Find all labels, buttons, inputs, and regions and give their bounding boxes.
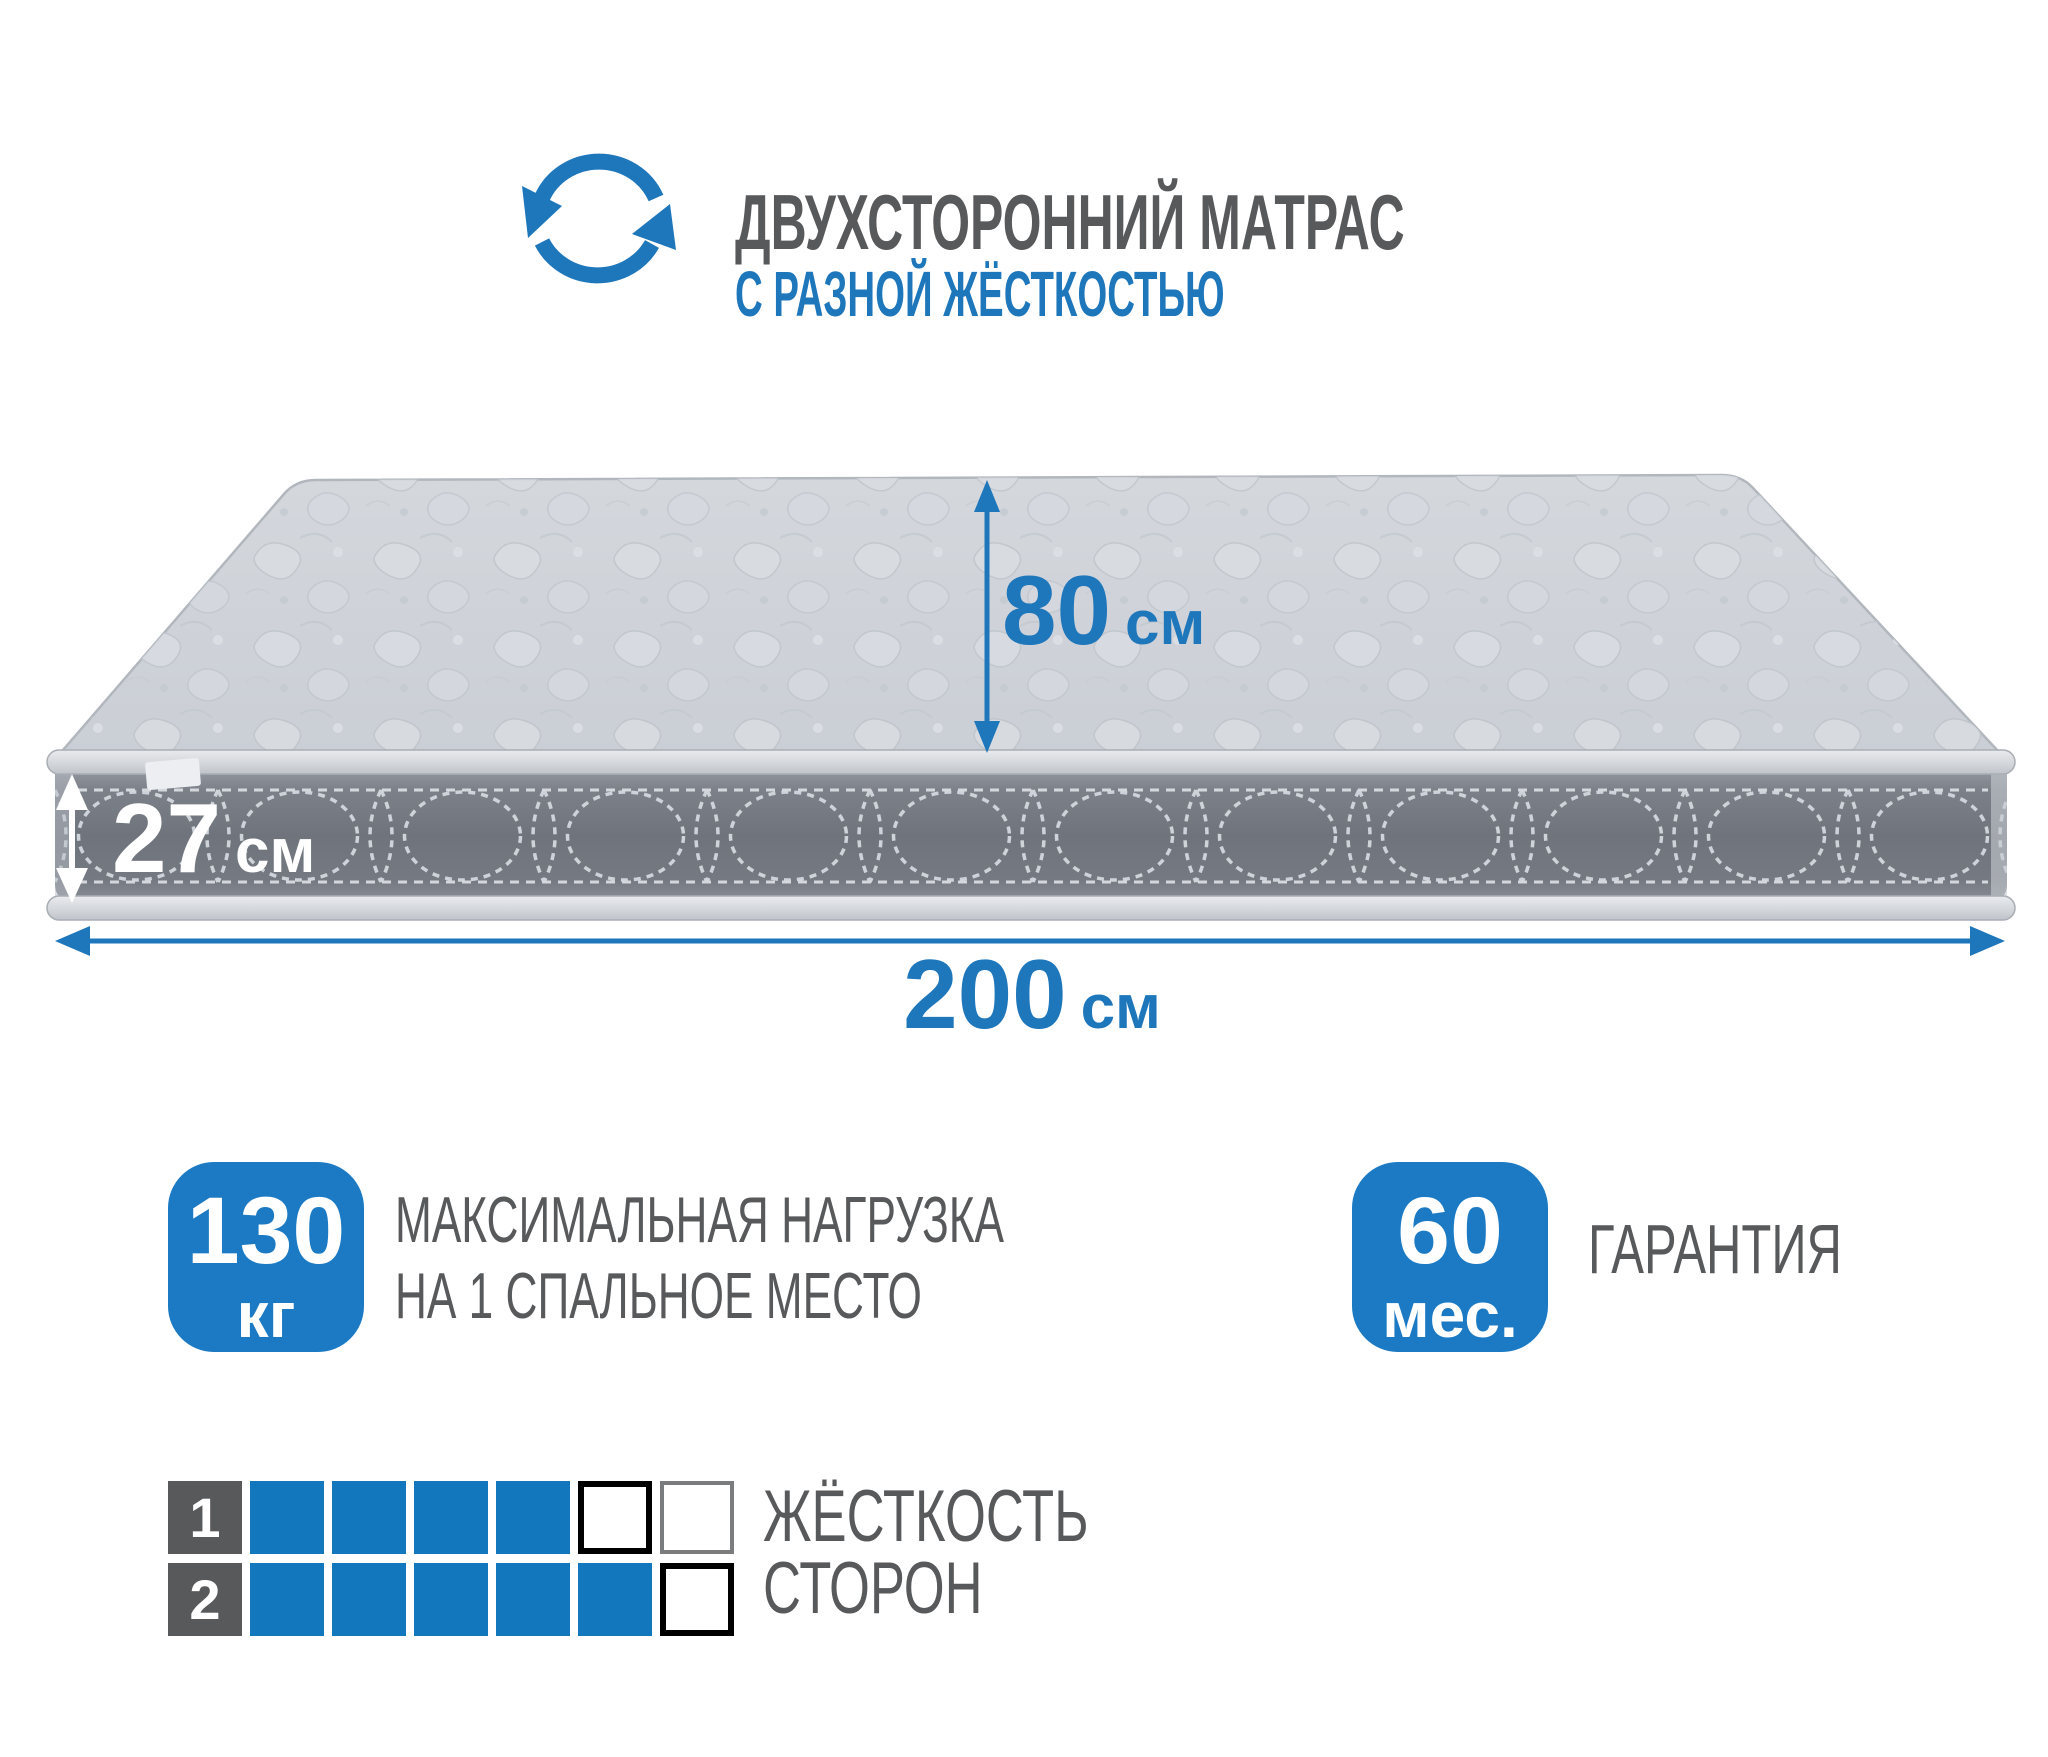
rotate-arrows-icon [500, 142, 700, 297]
hardness-cell [250, 1481, 324, 1554]
hardness-cell [250, 1563, 324, 1636]
max-load-description: МАКСИМАЛЬНАЯ НАГРУЗКА НА 1 СПАЛЬНОЕ МЕСТ… [395, 1182, 1291, 1334]
width-unit: см [1125, 589, 1205, 658]
warranty-label: ГАРАНТИЯ [1588, 1214, 1951, 1284]
hardness-cell [496, 1481, 570, 1554]
hardness-scale: 12 [168, 1481, 734, 1636]
warranty-value: 60 [1352, 1184, 1548, 1279]
hardness-row: 2 [168, 1563, 734, 1636]
mattress-infographic: ДВУХСТОРОННИЙ МАТРАС С РАЗНОЙ ЖЁСТКОСТЬЮ [0, 0, 2048, 1757]
svg-text:200см: 200см [903, 939, 1161, 1049]
hardness-cell [660, 1563, 734, 1636]
warranty-unit: мес. [1352, 1283, 1548, 1347]
width-value: 80 [1002, 555, 1111, 665]
mattress-bottom-piping [47, 896, 2015, 920]
warranty-badge: 60 мес. [1352, 1162, 1548, 1352]
page-subtitle: С РАЗНОЙ ЖЁСТКОСТЬЮ [735, 262, 1551, 326]
hardness-scale-label: ЖЁСТКОСТЬ СТОРОН [763, 1481, 1215, 1625]
height-unit: см [235, 817, 315, 886]
hardness-cell [578, 1563, 652, 1636]
mattress-front-face [55, 772, 2007, 900]
max-load-unit: кг [168, 1283, 364, 1347]
hardness-side-number: 1 [168, 1481, 242, 1554]
hardness-cell [496, 1563, 570, 1636]
length-unit: см [1081, 973, 1161, 1042]
max-load-value: 130 [168, 1184, 364, 1279]
mattress-illustration: 27см 80см 200см [0, 400, 2048, 1100]
page-title: ДВУХСТОРОННИЙ МАТРАС [735, 183, 1781, 261]
length-value: 200 [903, 939, 1067, 1049]
length-dimension: 200см [55, 926, 2005, 1049]
height-value: 27 [112, 783, 221, 893]
mattress-top-piping [47, 750, 2015, 774]
max-load-badge: 130 кг [168, 1162, 364, 1352]
hardness-cell [578, 1481, 652, 1554]
hardness-cell [660, 1481, 734, 1554]
hardness-cell [332, 1563, 406, 1636]
hardness-cell [332, 1481, 406, 1554]
hardness-row: 1 [168, 1481, 734, 1554]
hardness-cell [414, 1481, 488, 1554]
hardness-side-number: 2 [168, 1563, 242, 1636]
hardness-cell [414, 1563, 488, 1636]
